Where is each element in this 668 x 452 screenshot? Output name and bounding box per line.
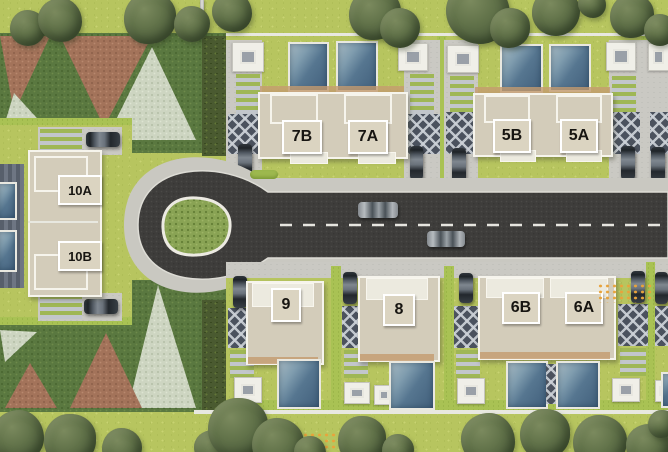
tree	[44, 414, 96, 452]
tree	[532, 0, 580, 36]
tree	[644, 14, 668, 46]
tree	[38, 0, 82, 42]
tree	[648, 410, 668, 438]
tree	[382, 434, 414, 452]
tree	[0, 410, 44, 452]
tree	[578, 0, 606, 18]
tree	[338, 416, 386, 452]
tree	[490, 8, 530, 48]
site-plan: 10A 10B 7B 7A 5B 5A	[0, 0, 668, 452]
tree	[573, 415, 627, 452]
tree	[174, 6, 210, 42]
tree	[212, 0, 252, 32]
tree	[520, 409, 570, 452]
tree	[124, 0, 176, 44]
tree	[380, 8, 420, 48]
tree-layer	[0, 0, 668, 452]
tree	[461, 413, 515, 452]
tree	[102, 428, 142, 452]
